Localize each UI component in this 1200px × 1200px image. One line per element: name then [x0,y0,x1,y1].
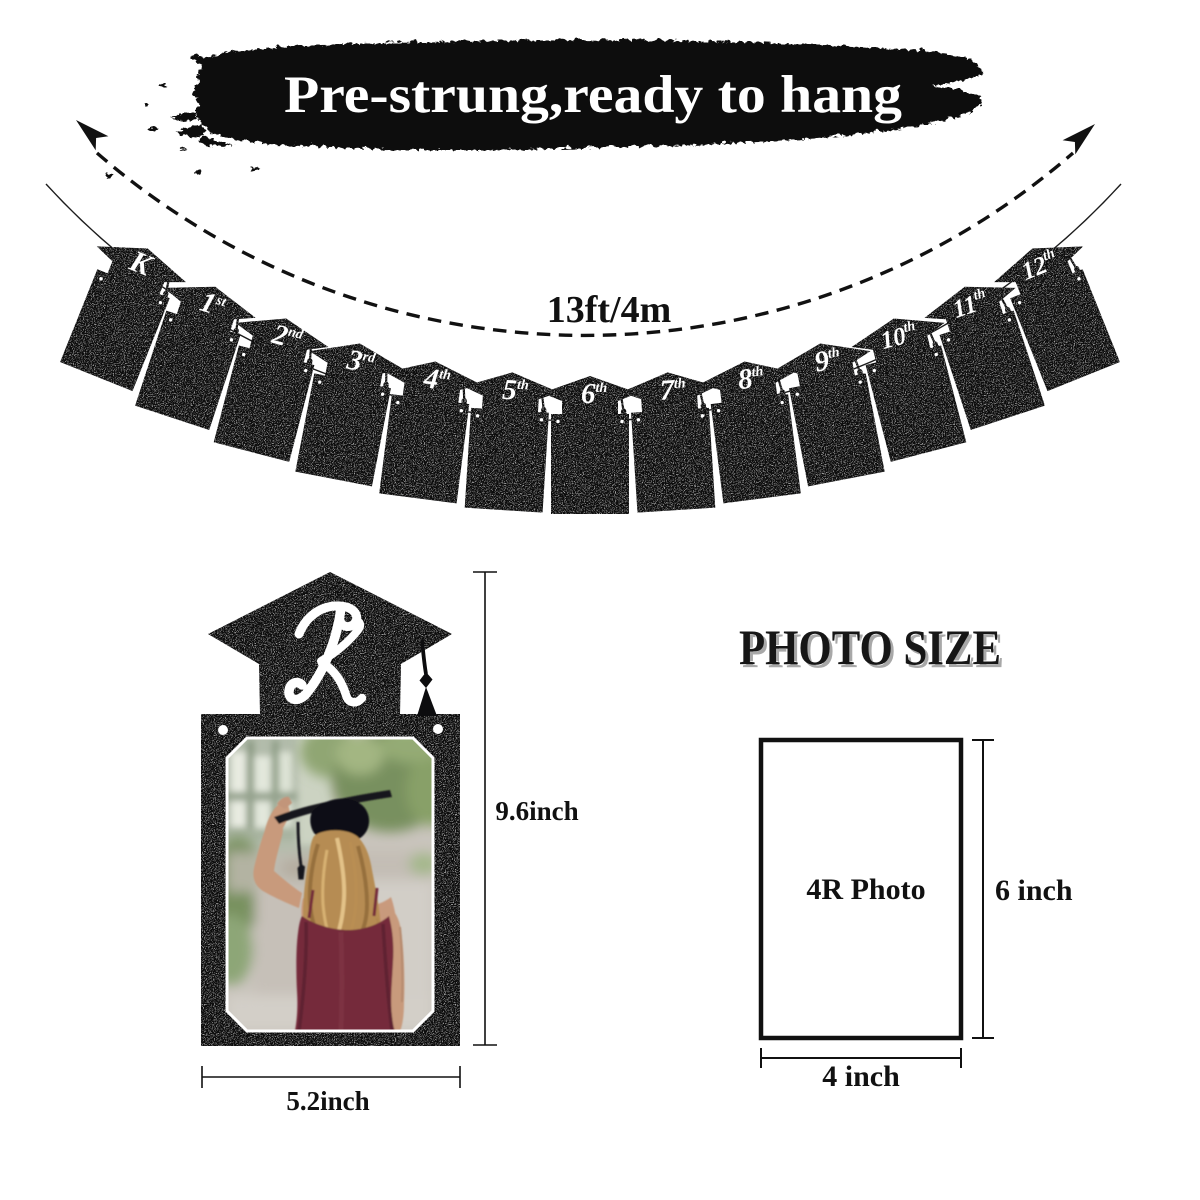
svg-text:9.6inch: 9.6inch [495,796,578,826]
svg-text:6 inch: 6 inch [995,874,1073,907]
svg-text:PHOTO SIZE: PHOTO SIZE [739,619,1001,675]
svg-text:4R Photo: 4R Photo [806,873,925,906]
svg-text:Pre-strung,ready to hang: Pre-strung,ready to hang [284,66,902,124]
svg-text:5.2inch: 5.2inch [286,1086,369,1116]
svg-text:13ft/4m: 13ft/4m [547,289,672,331]
svg-text:4 inch: 4 inch [822,1060,900,1093]
